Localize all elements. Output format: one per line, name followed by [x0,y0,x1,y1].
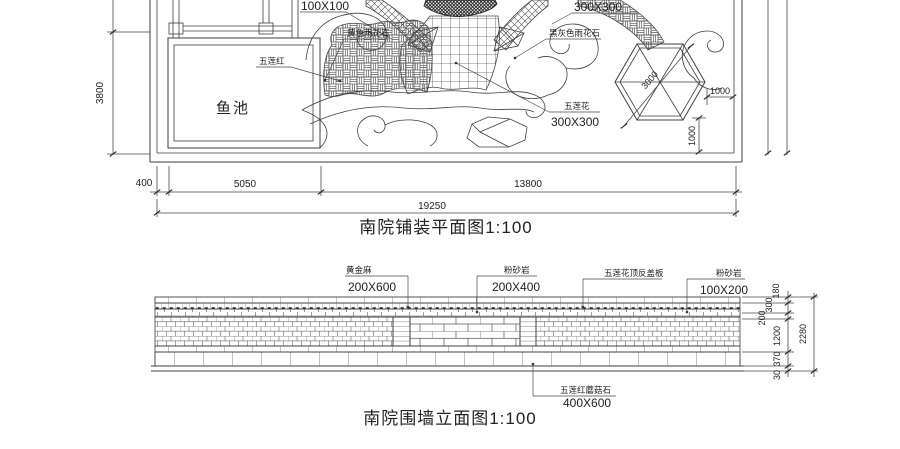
label-wulian-red: 五莲红 [259,56,285,66]
wall-base-row [155,352,740,366]
wall-tick-row [155,303,740,309]
wall-elevation [151,297,744,371]
cad-canvas: 鱼池 3000 [0,0,900,449]
wall-field-middle [410,317,520,346]
dim-19250-text: 19250 [418,201,446,212]
dim-2280-text: 2280 [798,324,808,344]
plan-title: 南院铺装平面图1:100 [359,218,533,237]
cad-drawing: 鱼池 3000 [0,0,900,449]
wall-pilaster-left [393,317,410,346]
dim-300-text: 300 [764,297,774,312]
dim-180-text: 180 [771,283,781,298]
dim-5050-text: 5050 [234,179,257,190]
plan-dim-row1: 400 5050 13800 [136,166,742,196]
dim-400-text: 400 [136,178,153,189]
wall-upper-course [155,309,740,317]
label-mushroom-stone-size: 400X600 [563,396,611,410]
dim-1000-vertical: 1000 [687,116,706,155]
label-tile-300-topright: 300X300 [574,0,622,14]
label-sandstone-left-size: 200X400 [492,280,540,294]
dim-30-text: 30 [772,370,782,380]
dim-370-text: 370 [772,351,782,366]
label-coping-board: 五莲花顶反盖板 [604,268,664,278]
rock [467,117,527,147]
pavilion-structure [169,0,298,38]
dim-200-text: 200 [757,310,767,325]
hexagon-pavilion [615,44,705,120]
label-wulian-flower-size: 300X300 [551,115,599,129]
elevation-title: 南院围墙立面图1:100 [363,409,537,428]
dim-13800-text: 13800 [514,179,542,190]
dim-1000-h-text: 1000 [710,86,730,96]
label-wulian-flower: 五莲花 [564,101,590,111]
right-extension-lines [765,0,790,155]
fish-pond [168,38,320,148]
wall-lower-course [155,346,740,352]
plan-dim-row2: 19250 [154,199,739,217]
label-gold-granite-size: 200X600 [348,280,396,294]
label-gold-granite: 黄金麻 [346,265,372,275]
wall-field-right [536,317,740,346]
wall-field-left [155,317,393,346]
label-tile-100: 100X100 [301,0,349,13]
dim-3800-text: 3800 [95,81,106,104]
medallion-center [424,0,497,17]
ground-line [151,366,744,371]
plan-dim-3800: 3800 [95,0,150,156]
dim-1000-v-text: 1000 [687,126,697,146]
dim-1200-text: 1200 [772,326,782,346]
label-yellow-stone: 黄色雨花石 [347,28,390,38]
label-sandstone-right: 粉砂岩 [716,268,742,278]
elevation-dims: 180 300 200 1200 370 30 2280 [742,283,818,380]
label-mushroom-stone: 五莲红蘑菇石 [560,385,611,395]
fish-pond-label: 鱼池 [216,99,250,117]
label-dark-stone: 黑灰色雨花石 [549,28,600,38]
wall-pilaster-right [520,317,536,346]
label-sandstone-left: 粉砂岩 [504,265,530,275]
label-sandstone-right-size: 100X200 [700,283,748,297]
wall-coping-row [155,297,740,303]
